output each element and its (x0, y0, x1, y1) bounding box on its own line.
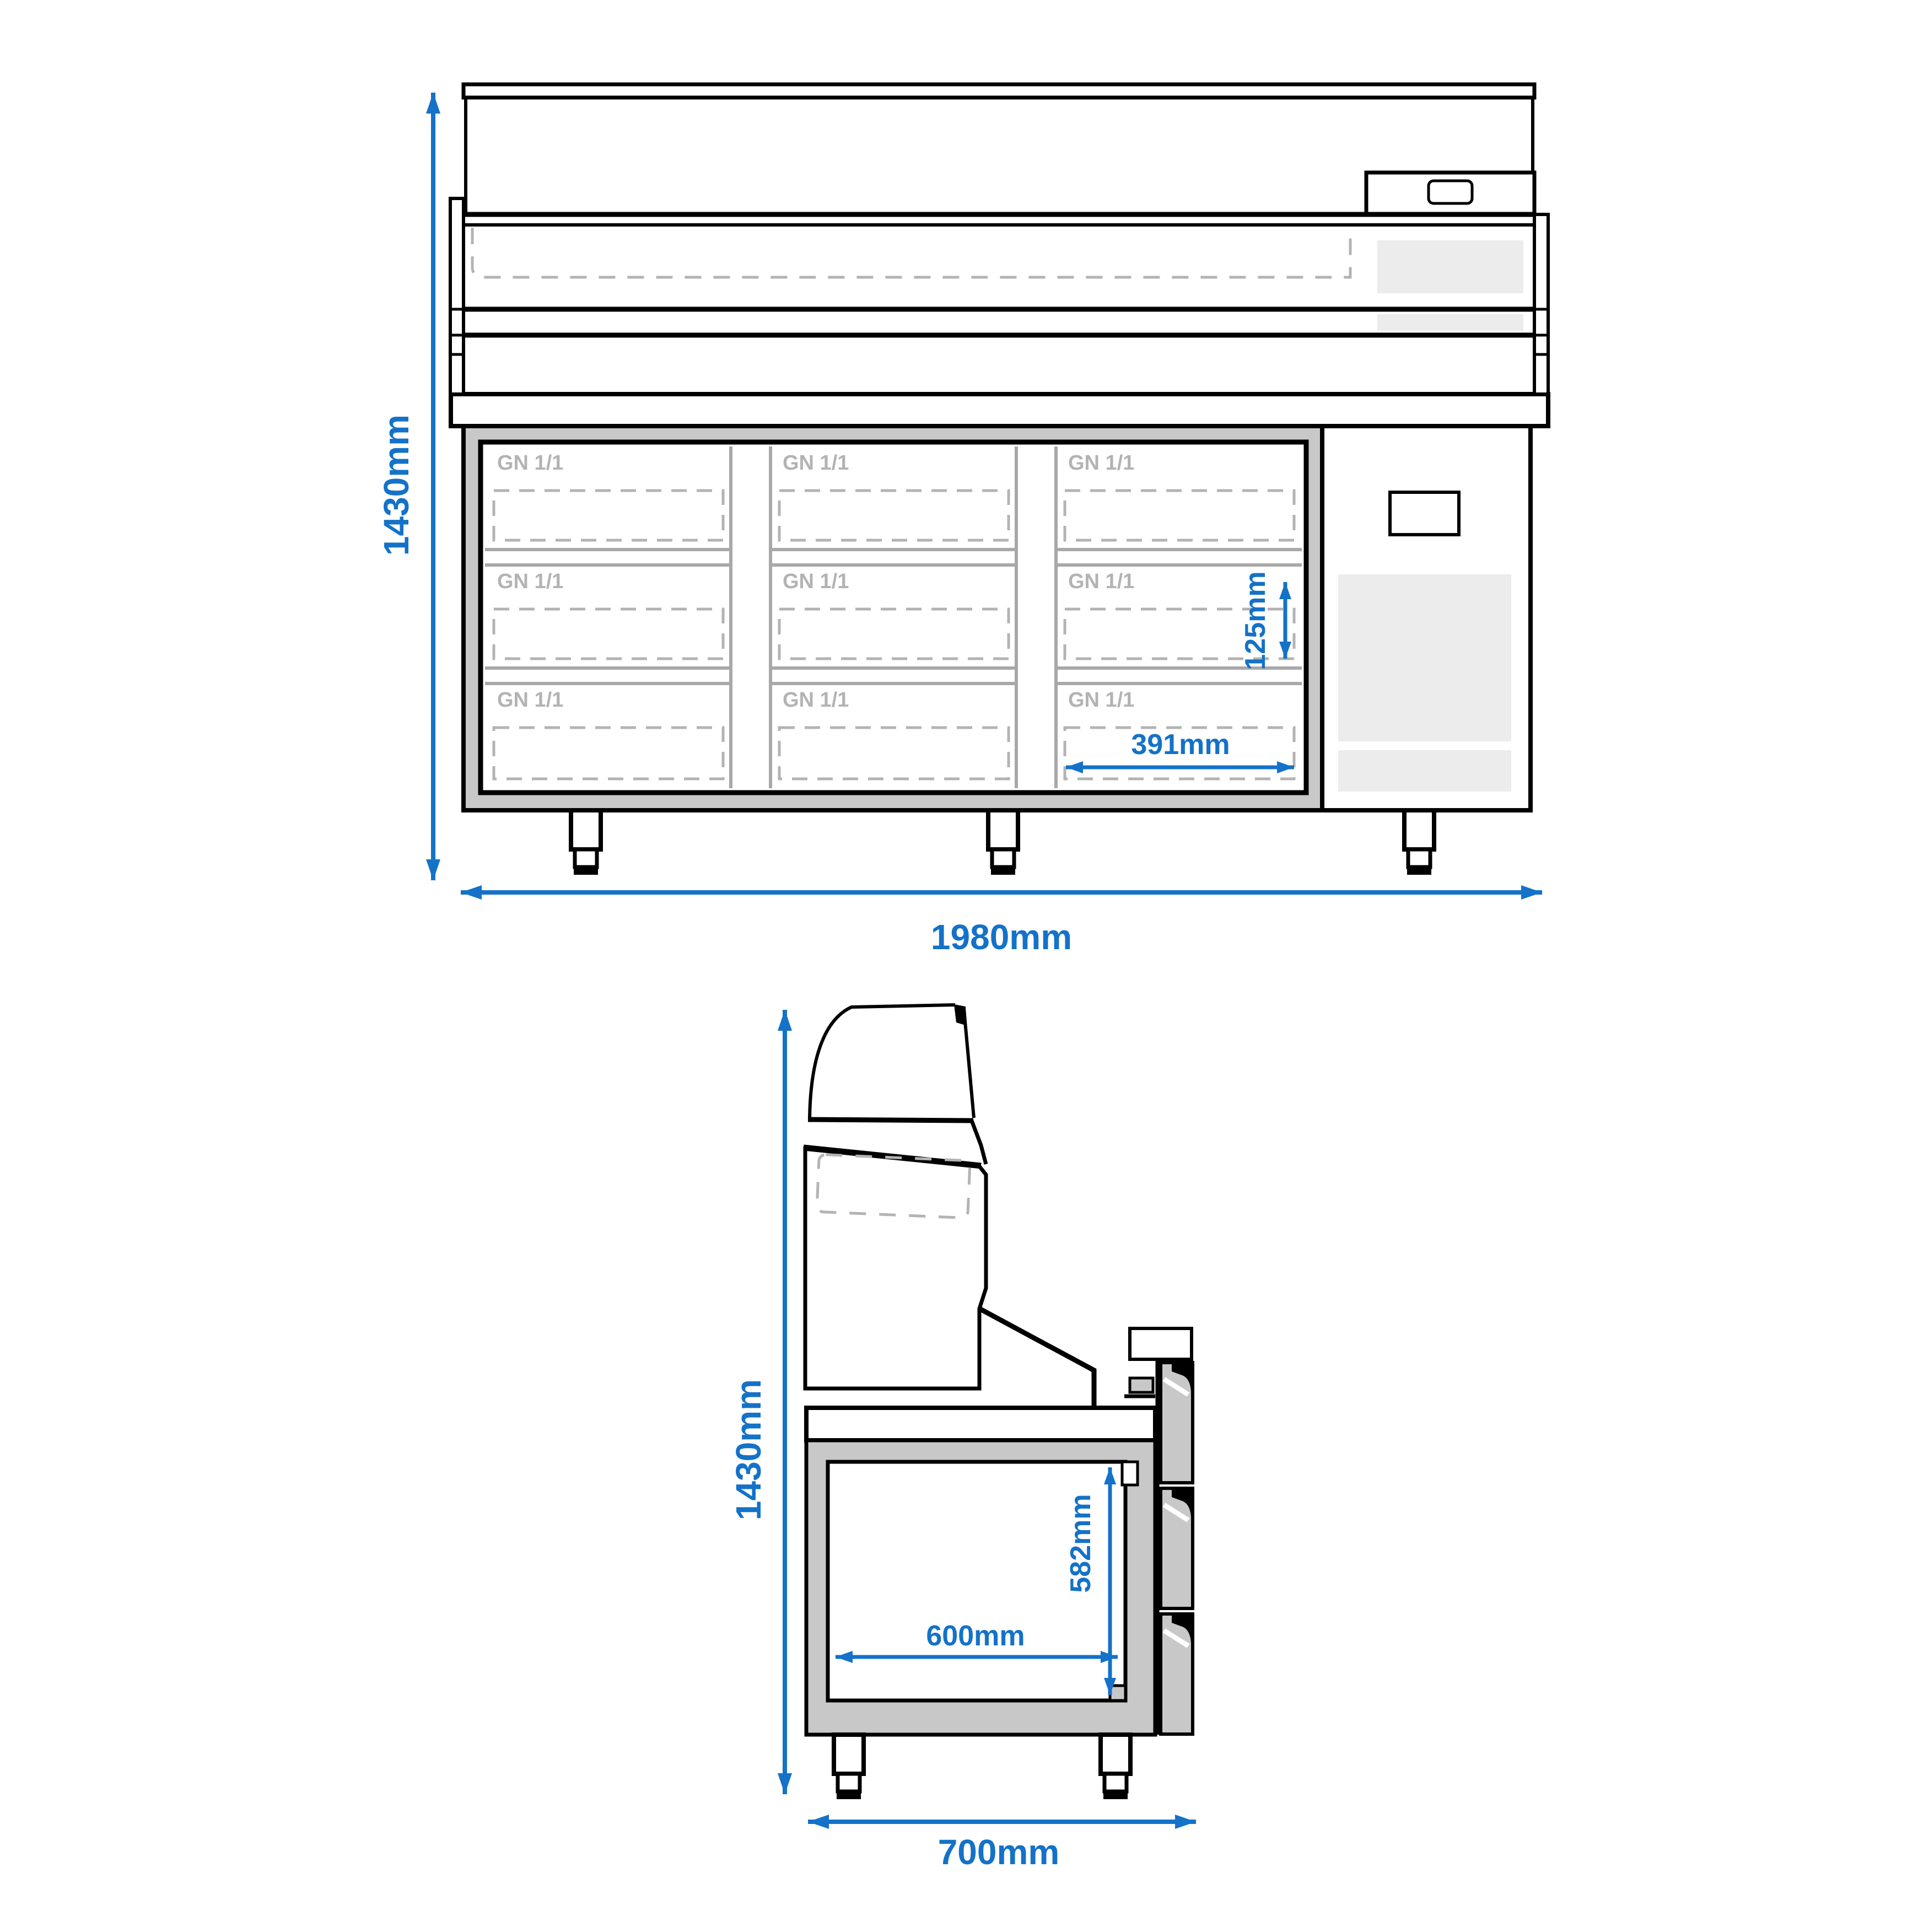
gn-label: GN 1/1 (1068, 688, 1134, 712)
dim-front-width-label: 1980mm (931, 917, 1072, 957)
legs-side (834, 1735, 1130, 1799)
drawer-rail-block (1130, 1328, 1192, 1359)
machine-compartment (1322, 426, 1531, 810)
drawer (1161, 1614, 1193, 1734)
machine-vent-large (1338, 574, 1511, 741)
glass-curve (810, 1005, 955, 1120)
cabinet-side: 582mm 600mm (806, 1440, 1155, 1735)
gn-label: GN 1/1 (497, 570, 563, 593)
gn-label: GN 1/1 (1068, 570, 1134, 593)
dim-pan-height-label: 125mm (1240, 571, 1271, 670)
drawer (1161, 1488, 1193, 1608)
control-display (1429, 181, 1472, 203)
vent-panel-upper (1377, 240, 1523, 293)
pan-rail-bands (451, 214, 1548, 426)
dim-inner-width-label: 600mm (926, 1620, 1025, 1652)
legs-front (571, 810, 1434, 875)
counter-band (451, 394, 1548, 426)
dimension-front-height: 1430mm (376, 93, 433, 880)
front-view: GN 1/1 GN 1/1 GN 1/1 GN 1/1 GN 1/1 GN 1/… (376, 84, 1548, 957)
drawer (1161, 1363, 1193, 1483)
gn-label: GN 1/1 (497, 451, 563, 475)
dim-inner-height-label: 582mm (1065, 1494, 1097, 1592)
gn-label: GN 1/1 (1068, 451, 1134, 475)
machine-vent-small (1338, 750, 1511, 792)
left-end-strip (450, 198, 464, 394)
dim-side-depth-label: 700mm (938, 1832, 1060, 1872)
counter-band-side (806, 1408, 1155, 1440)
gn-label: GN 1/1 (783, 451, 849, 475)
cavity-top-notch (1122, 1462, 1138, 1485)
pan-outline-dashed (472, 228, 1350, 277)
display-canopy-side (808, 1004, 986, 1164)
worktop-slope (979, 1309, 1094, 1408)
machine-display (1390, 492, 1459, 535)
technical-drawing: GN 1/1 GN 1/1 GN 1/1 GN 1/1 GN 1/1 GN 1/… (0, 0, 1929, 1929)
dimension-front-width: 1980mm (461, 892, 1542, 957)
canopy-top-bar (464, 84, 1534, 98)
vent-strip-upper (1377, 314, 1523, 331)
gn-label: GN 1/1 (497, 688, 563, 712)
leg (988, 810, 1018, 875)
display-canopy-front (464, 84, 1534, 214)
drawer-rail-lower (1130, 1378, 1153, 1392)
pan-backsplash (804, 1148, 986, 1389)
leg (571, 810, 601, 875)
dimension-side-depth: 700mm (808, 1822, 1196, 1872)
right-end-strip (1534, 214, 1548, 394)
cavity-bottom-step (1110, 1686, 1125, 1700)
dim-side-height-label: 1430mm (729, 1379, 768, 1520)
leg (834, 1735, 864, 1799)
gn-label: GN 1/1 (783, 688, 849, 712)
dimension-side-height: 1430mm (729, 1010, 785, 1794)
glass-frame-right (972, 1121, 986, 1164)
dim-pan-width-label: 391mm (1131, 729, 1230, 761)
left-end-strip-body (450, 198, 464, 394)
gn-label: GN 1/1 (783, 570, 849, 593)
side-view: 582mm 600mm (729, 1004, 1196, 1872)
glass-top-cap (954, 1004, 966, 1025)
backsplash-body (805, 1149, 986, 1389)
dim-front-height-label: 1430mm (376, 415, 416, 556)
drawer-stack (1161, 1363, 1193, 1734)
leg (1404, 810, 1434, 875)
cabinet-front: GN 1/1 GN 1/1 GN 1/1 GN 1/1 GN 1/1 GN 1/… (464, 426, 1322, 810)
glass-bottom-line (808, 1120, 973, 1121)
right-end-strip-body (1534, 214, 1548, 394)
leg (1101, 1735, 1130, 1799)
